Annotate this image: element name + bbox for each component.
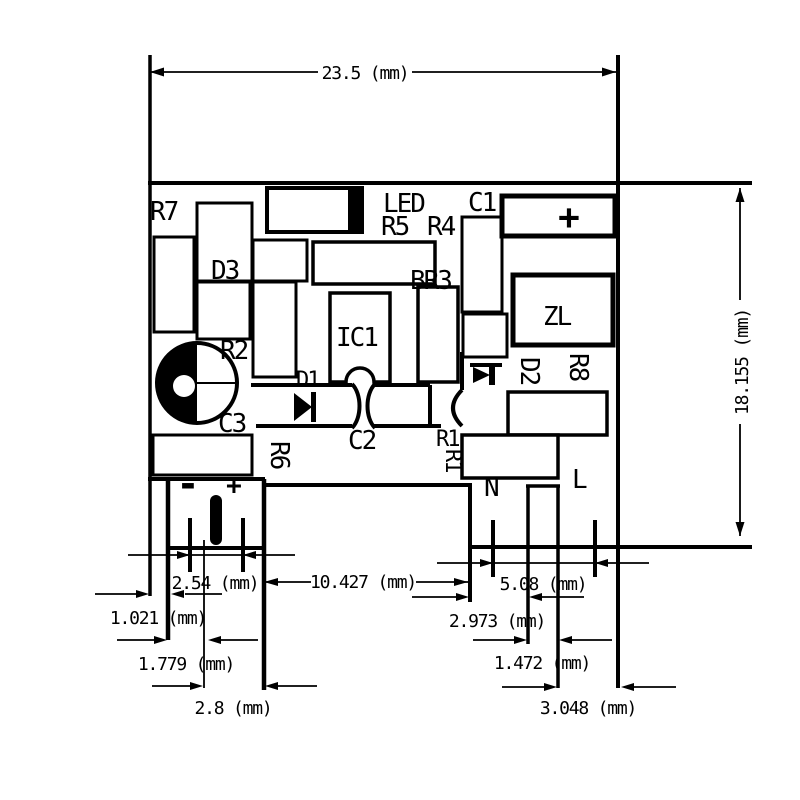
label-br3: BR3: [410, 266, 451, 296]
component-d1-diode: [294, 392, 316, 422]
dim-text-28: 2.8 (mm): [194, 698, 271, 719]
dim-3048-arrow-left: [544, 683, 557, 691]
label-r4: R4: [427, 212, 456, 242]
component-body-above-d2: [463, 314, 507, 357]
d1-triangle: [294, 393, 312, 421]
dimension-edge-to-block: 1.021 (mm): [95, 590, 222, 629]
dim-1472-arrow-left: [514, 636, 527, 644]
board-pins: [190, 495, 595, 577]
dim-text-3048: 3.048 (mm): [540, 698, 636, 719]
dim-height-arrow-top: [736, 188, 745, 202]
component-body-r6: [153, 435, 252, 475]
c3-lead-hole: [173, 375, 195, 397]
dim-1779-arrow-right: [208, 636, 221, 644]
component-r7-body: [154, 237, 194, 332]
dim-text-board-height: 18.155 (mm): [732, 309, 753, 415]
r1-arc: [453, 390, 462, 426]
component-c1-body: [462, 217, 502, 312]
label-d2: D2: [514, 357, 544, 385]
dimension-middle-span: 10.427 (mm): [264, 572, 468, 593]
led-cathode-band: [348, 188, 362, 232]
dim-1779-arrow-left: [154, 636, 167, 644]
dim-text-254: 2.54 (mm): [172, 573, 259, 594]
dim-width-arrow-left: [150, 68, 164, 77]
label-r2: R2: [220, 336, 248, 366]
label-d3: D3: [211, 256, 239, 286]
dimension-center-to-block-edge: 2.8 (mm): [152, 682, 317, 719]
c2-plate-right: [368, 384, 376, 428]
component-body-n-terminal: [462, 435, 558, 478]
dim-text-508: 5.08 (mm): [500, 574, 587, 595]
c2-plate-left: [352, 384, 360, 428]
label-r7: R7: [150, 197, 178, 227]
dim-text-10427: 10.427 (mm): [310, 572, 416, 593]
dim-28-arrow-right: [265, 682, 278, 690]
label-c1: C1: [468, 188, 496, 218]
component-body-below-d3: [197, 282, 250, 339]
dim-text-board-width: 23.5 (mm): [322, 63, 409, 84]
component-body-left-of-r5: [253, 240, 307, 281]
dim-3048-arrow-right: [621, 683, 634, 691]
dim-text-1472: 1.472 (mm): [494, 653, 590, 674]
dim-10427-arrow-right: [454, 578, 468, 586]
dimension-dc-pin-pitch: 2.54 (mm): [128, 551, 295, 594]
label-c3: C3: [218, 409, 246, 439]
dim-text-1021: 1.021 (mm): [110, 608, 206, 629]
label-plus-terminal: +: [226, 471, 242, 501]
dimension-board-width: 23.5 (mm): [150, 63, 616, 84]
d2-cathode-bar: [489, 364, 495, 385]
dim-text-2973: 2.973 (mm): [449, 611, 545, 632]
dimension-slot-to-edge: 3.048 (mm): [502, 683, 676, 719]
dim-width-arrow-right: [602, 68, 616, 77]
label-r6: R6: [264, 441, 294, 469]
pcb-dimension-drawing: R7 D3 R2 C3 LED R5 R4 BR3 IC1 D1 C2 R1 C…: [0, 0, 800, 800]
dimension-board-height: 18.155 (mm): [732, 188, 753, 536]
d1-cathode-bar: [311, 392, 316, 422]
label-capacitor-plus: +: [558, 197, 580, 238]
label-n-terminal: N: [484, 473, 498, 503]
label-c2: C2: [348, 426, 376, 456]
dimension-block-to-center: 1.779 (mm): [117, 636, 258, 675]
label-r5: R5: [381, 212, 409, 242]
dim-height-arrow-bottom: [736, 522, 745, 536]
label-minus-terminal: -: [177, 462, 200, 506]
drawing-canvas: R7 D3 R2 C3 LED R5 R4 BR3 IC1 D1 C2 R1 C…: [0, 0, 800, 800]
dim-1472-arrow-right: [559, 636, 572, 644]
label-r1-side: R1: [440, 449, 465, 472]
component-d2-diode: [473, 364, 495, 385]
component-r8-body: [508, 392, 607, 435]
dim-2973-arrow-left: [456, 593, 469, 601]
label-zl: ZL: [543, 302, 572, 332]
dim-28-arrow-left: [190, 682, 203, 690]
dim-text-1779: 1.779 (mm): [138, 654, 234, 675]
label-l-terminal: L: [572, 465, 587, 495]
dimension-slot-width: 1.472 (mm): [473, 636, 612, 674]
component-br3-body: [418, 287, 458, 382]
dc-terminal-slot: [210, 495, 222, 545]
component-led-body: [267, 188, 362, 232]
label-ic1: IC1: [336, 323, 377, 353]
label-d1: D1: [296, 368, 319, 393]
dim-1021-arrow-left: [136, 590, 149, 598]
component-body-right-of-c3: [253, 282, 296, 377]
d2-triangle: [473, 367, 490, 383]
label-r8: R8: [563, 353, 593, 381]
